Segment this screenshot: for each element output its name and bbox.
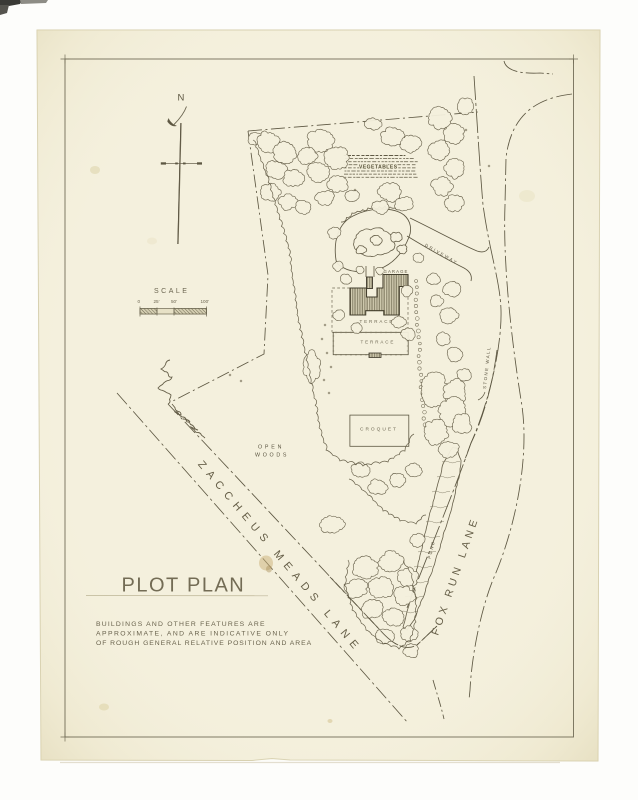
svg-text:CROQUET: CROQUET <box>360 427 398 433</box>
svg-text:APPROXIMATE, AND ARE INDICATIV: APPROXIMATE, AND ARE INDICATIVE ONLY <box>96 631 289 638</box>
svg-text:PLAN: PLAN <box>187 575 245 597</box>
svg-text:GARAGE: GARAGE <box>384 269 409 274</box>
svg-text:50′: 50′ <box>171 299 177 304</box>
svg-text:SCALE: SCALE <box>154 288 189 295</box>
svg-text:25′: 25′ <box>154 299 160 304</box>
svg-text:PLOT: PLOT <box>122 575 180 597</box>
svg-text:100′: 100′ <box>201 299 210 304</box>
svg-text:BUILDINGS AND OTHER FEATURES A: BUILDINGS AND OTHER FEATURES ARE <box>96 621 266 628</box>
svg-text:TERRACE: TERRACE <box>361 340 396 345</box>
svg-text:0: 0 <box>138 299 141 304</box>
svg-text:N: N <box>178 93 185 104</box>
svg-text:OF ROUGH GENERAL RELATIVE POSI: OF ROUGH GENERAL RELATIVE POSITION AND A… <box>96 640 312 647</box>
svg-text:OPEN: OPEN <box>258 445 284 451</box>
svg-text:WOODS: WOODS <box>255 453 289 459</box>
svg-text:VEGETABLES: VEGETABLES <box>359 164 398 170</box>
svg-text:TERRACE: TERRACE <box>360 319 395 324</box>
